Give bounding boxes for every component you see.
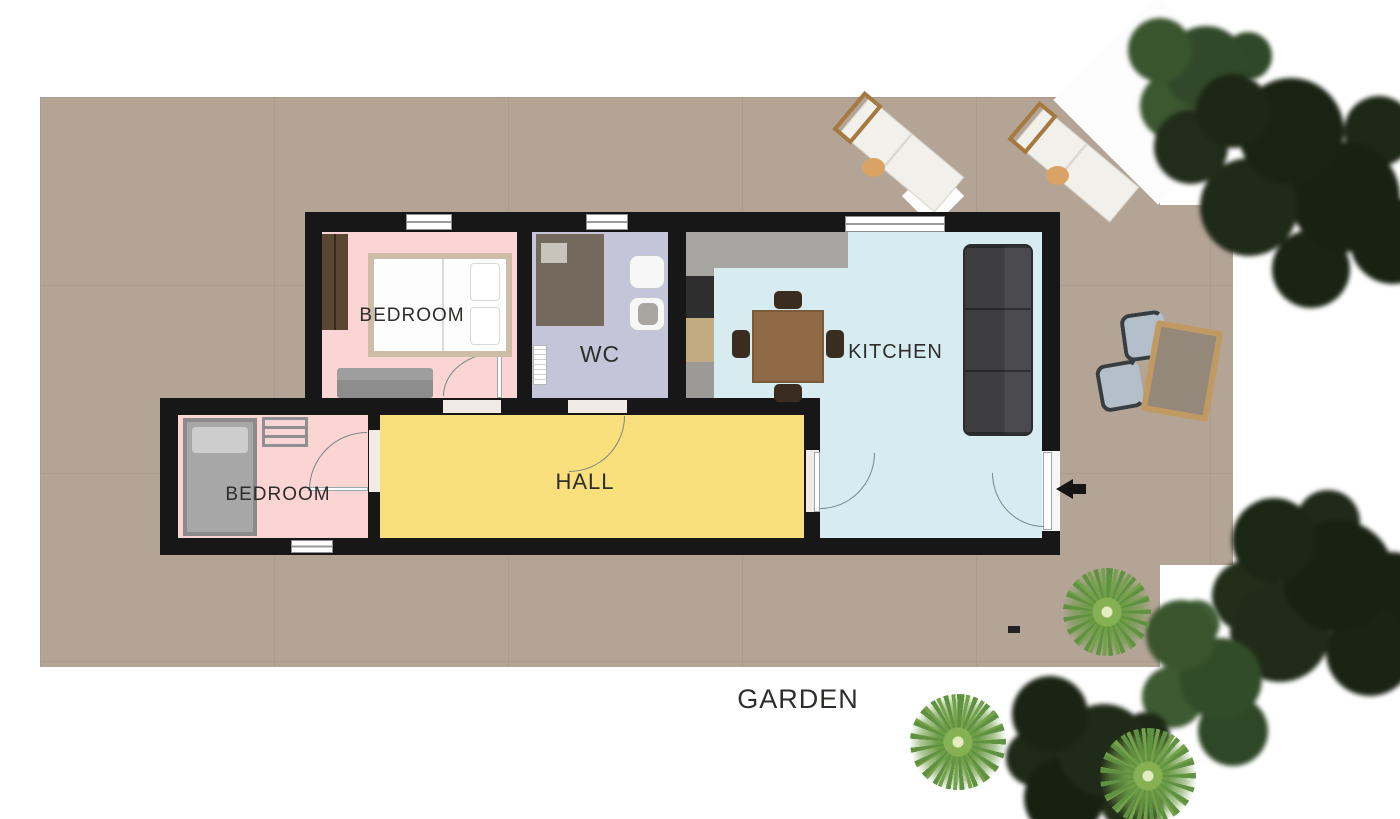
- sink: [629, 297, 665, 331]
- radiator: [533, 345, 547, 385]
- tree-icon: [1232, 498, 1316, 582]
- sink-bowl: [638, 303, 658, 325]
- dining-chair: [774, 384, 802, 402]
- palm-tree-icon: [910, 694, 1006, 790]
- entrance-arrow-icon: [1056, 479, 1088, 499]
- kitchen-counter-top: [686, 232, 848, 268]
- door-threshold-bedroom-2: [369, 430, 380, 492]
- floor-plan-canvas: BEDROOM WC KITCHEN HALL BEDROOM GARDEN: [0, 0, 1400, 819]
- lounger-side-table: [862, 158, 885, 177]
- door-threshold-wc: [568, 400, 627, 413]
- sofa: [963, 244, 1033, 436]
- window: [845, 216, 945, 232]
- dining-chair: [774, 291, 802, 309]
- arrow-shaft: [1071, 484, 1086, 494]
- dining-table: [752, 310, 824, 383]
- door-leaf-entrance: [1043, 452, 1052, 530]
- room-label-wc: WC: [560, 341, 640, 368]
- room-label-bedroom-2: BEDROOM: [202, 484, 354, 506]
- shelf-ladder: [262, 417, 308, 447]
- outdoor-chair: [1094, 359, 1146, 414]
- window: [586, 214, 628, 230]
- room-label-hall: HALL: [520, 469, 650, 495]
- single-bed: [183, 418, 257, 536]
- small-marker: [1008, 626, 1020, 633]
- pillow: [470, 263, 500, 301]
- door-threshold-bedroom-1: [443, 400, 501, 413]
- pillow: [192, 427, 248, 453]
- toilet: [629, 255, 665, 289]
- tree-icon: [1146, 600, 1216, 670]
- dining-chair: [732, 330, 750, 358]
- palm-tree-icon: [1063, 568, 1151, 656]
- tree-icon: [1012, 676, 1088, 752]
- stove: [686, 276, 714, 318]
- kitchen-cabinet: [686, 318, 714, 362]
- tree-icon: [1196, 74, 1270, 148]
- room-label-bedroom-1: BEDROOM: [337, 305, 487, 327]
- window: [291, 540, 333, 553]
- window: [406, 214, 452, 230]
- palm-tree-icon: [1100, 728, 1196, 819]
- tree-icon: [1128, 18, 1192, 82]
- shower-head: [541, 243, 567, 263]
- lounger-side-table: [1046, 166, 1069, 185]
- garden-label: GARDEN: [708, 684, 888, 715]
- kitchen-cabinet: [686, 362, 714, 398]
- room-label-kitchen: KITCHEN: [818, 341, 973, 364]
- bedroom-bench: [337, 368, 433, 398]
